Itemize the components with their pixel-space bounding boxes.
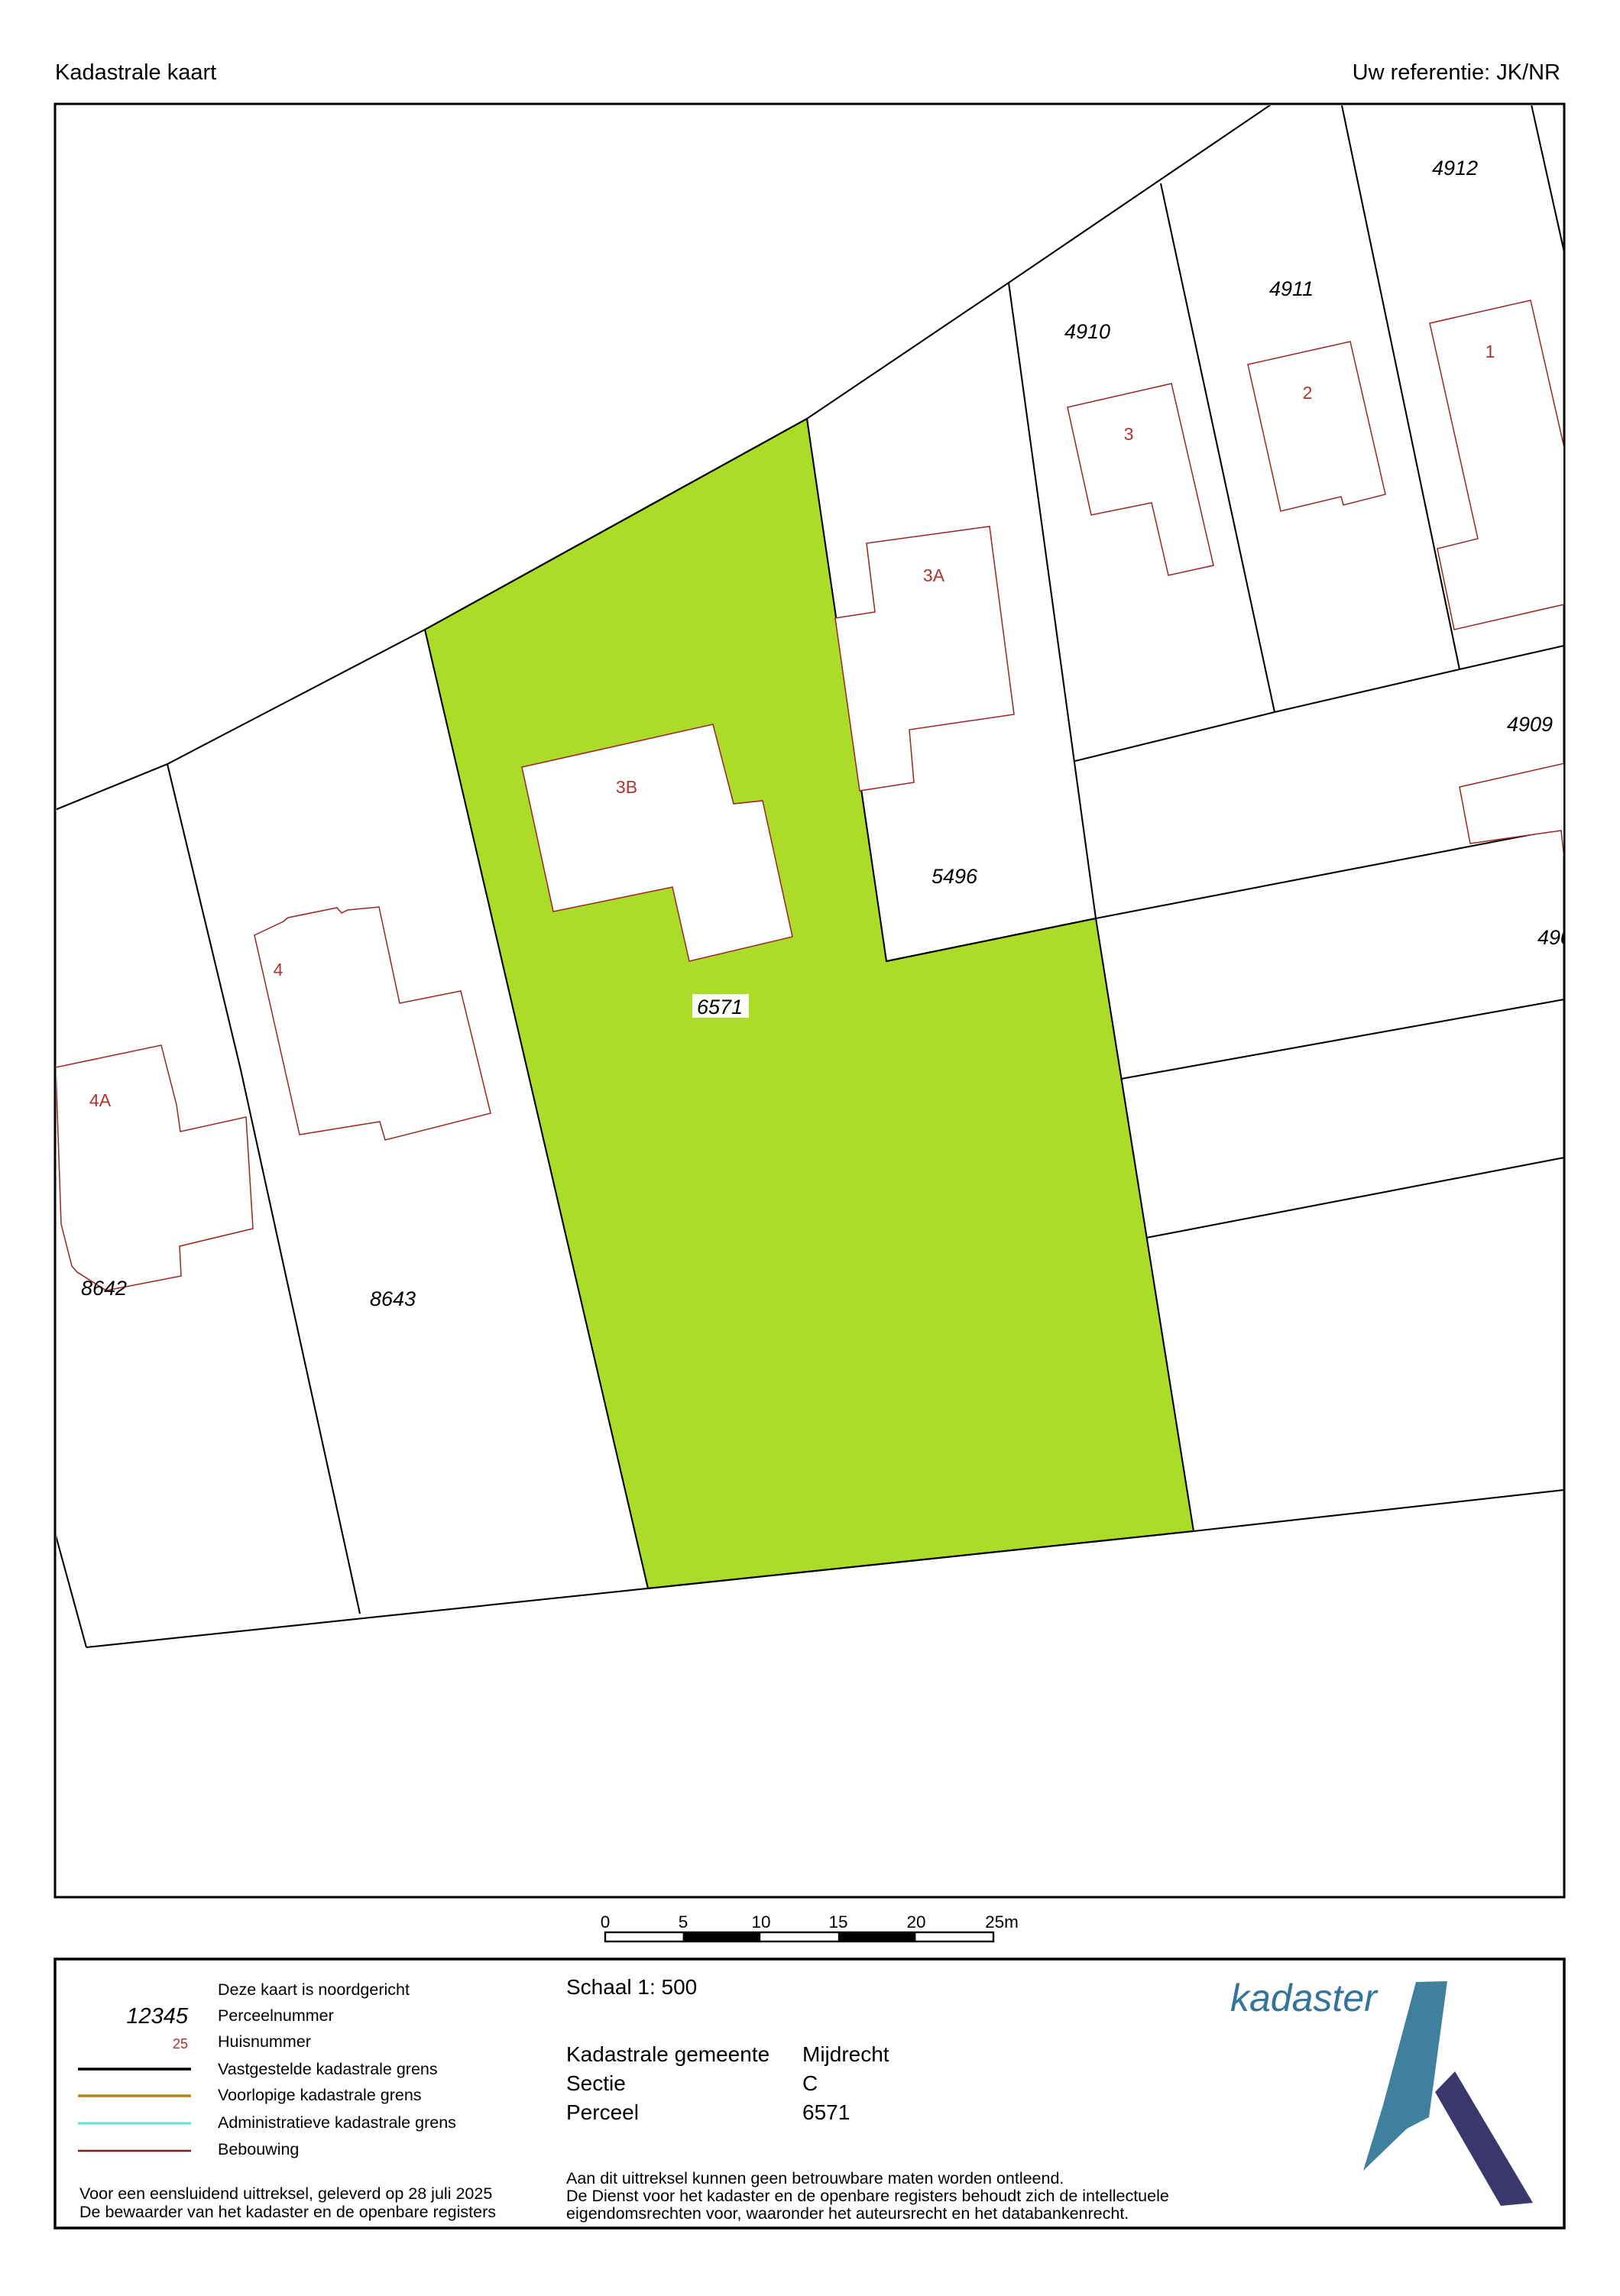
- svg-text:8642: 8642: [81, 1277, 127, 1300]
- svg-text:Mijdrecht: Mijdrecht: [802, 2042, 889, 2066]
- svg-text:Vastgestelde kadastrale grens: Vastgestelde kadastrale grens: [218, 2060, 438, 2078]
- svg-text:6571: 6571: [802, 2100, 850, 2124]
- svg-text:Perceel: Perceel: [566, 2100, 639, 2124]
- svg-text:Deze kaart is noordgericht: Deze kaart is noordgericht: [218, 1980, 410, 1999]
- svg-text:De bewaarder van het kadaster: De bewaarder van het kadaster en de open…: [79, 2203, 496, 2221]
- svg-text:Voor een eensluidend uittrekse: Voor een eensluidend uittreksel, gelever…: [79, 2184, 492, 2203]
- svg-text:4909: 4909: [1507, 713, 1553, 736]
- svg-text:25m: 25m: [985, 1912, 1019, 1932]
- svg-text:Administratieve kadastrale gre: Administratieve kadastrale grens: [218, 2113, 456, 2132]
- svg-text:Sectie: Sectie: [566, 2071, 626, 2095]
- svg-text:20: 20: [906, 1912, 925, 1932]
- svg-text:C: C: [802, 2071, 818, 2095]
- svg-text:Aan dit uittreksel kunnen geen: Aan dit uittreksel kunnen geen betrouwba…: [566, 2169, 1064, 2188]
- svg-text:0: 0: [601, 1912, 611, 1932]
- svg-text:2: 2: [1303, 383, 1313, 403]
- svg-text:Schaal 1: 500: Schaal 1: 500: [566, 1975, 697, 1999]
- svg-text:1: 1: [1486, 342, 1495, 361]
- svg-text:3: 3: [1124, 424, 1134, 444]
- svg-text:25: 25: [173, 2036, 188, 2052]
- svg-text:6571: 6571: [697, 996, 743, 1018]
- svg-text:8643: 8643: [370, 1287, 416, 1310]
- svg-text:4911: 4911: [1269, 277, 1314, 300]
- svg-text:10: 10: [751, 1912, 770, 1932]
- svg-text:Uw referentie: JK/NR: Uw referentie: JK/NR: [1353, 60, 1560, 85]
- svg-text:kadaster: kadaster: [1230, 1977, 1379, 2019]
- svg-text:4A: 4A: [89, 1090, 112, 1110]
- svg-text:Bebouwing: Bebouwing: [218, 2140, 299, 2158]
- svg-text:5496: 5496: [932, 865, 978, 888]
- svg-text:Huisnummer: Huisnummer: [218, 2032, 311, 2051]
- svg-text:4912: 4912: [1432, 157, 1478, 180]
- svg-text:Kadastrale kaart: Kadastrale kaart: [55, 60, 216, 85]
- svg-text:12345: 12345: [126, 2004, 189, 2029]
- svg-text:3B: 3B: [616, 777, 637, 797]
- svg-text:15: 15: [828, 1912, 847, 1932]
- svg-text:3A: 3A: [923, 565, 945, 585]
- svg-text:4910: 4910: [1064, 320, 1110, 343]
- svg-text:eigendomsrechten voor, waarond: eigendomsrechten voor, waaronder het aut…: [566, 2204, 1129, 2223]
- svg-text:4: 4: [274, 960, 283, 980]
- svg-text:Kadastrale gemeente: Kadastrale gemeente: [566, 2042, 769, 2066]
- svg-text:5: 5: [679, 1912, 688, 1932]
- svg-text:Perceelnummer: Perceelnummer: [218, 2006, 334, 2025]
- svg-text:De Dienst voor het kadaster en: De Dienst voor het kadaster en de openba…: [566, 2187, 1169, 2205]
- svg-text:Voorlopige kadastrale grens: Voorlopige kadastrale grens: [218, 2086, 422, 2104]
